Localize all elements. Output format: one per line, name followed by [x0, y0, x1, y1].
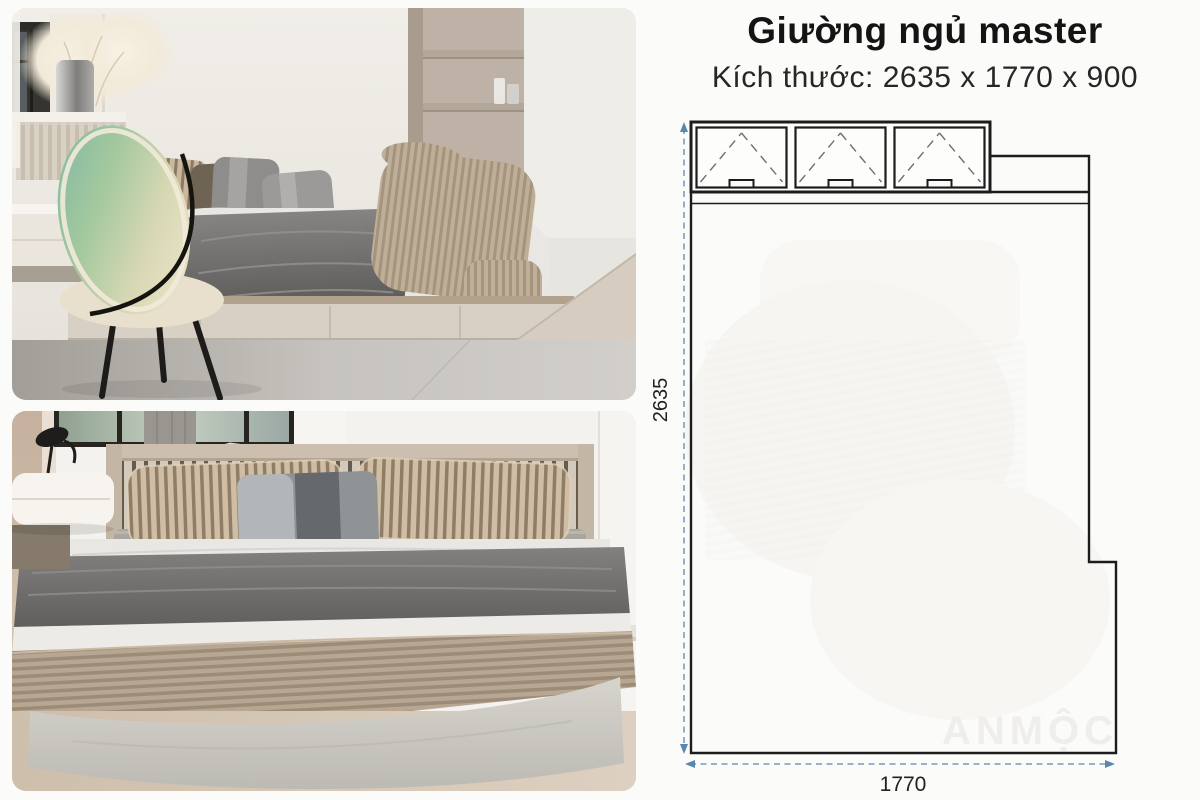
bottle [507, 84, 519, 104]
door-handle [928, 180, 952, 188]
ghost-bed-image [685, 240, 1110, 720]
photo-bed-front-view [12, 411, 636, 791]
width-dimension-label: 1770 [880, 773, 927, 796]
horizontal-dimension [685, 760, 1115, 768]
height-dimension-label: 2635 [650, 378, 672, 423]
bottle [494, 78, 505, 104]
door-handle [829, 180, 853, 188]
vase [56, 60, 94, 120]
brand-watermark: ANMỘC [942, 707, 1118, 753]
photo-bed-side-view [12, 8, 636, 400]
technical-drawing: ANMỘC 2635 1770 [640, 100, 1200, 800]
curtain-edge [12, 8, 20, 168]
door-handle [730, 180, 754, 188]
product-title: Giường ngủ master [650, 10, 1200, 52]
product-dimensions: Kích thước: 2635 x 1770 x 900 [650, 61, 1200, 95]
wardrobe-top-cabinet [691, 122, 990, 192]
